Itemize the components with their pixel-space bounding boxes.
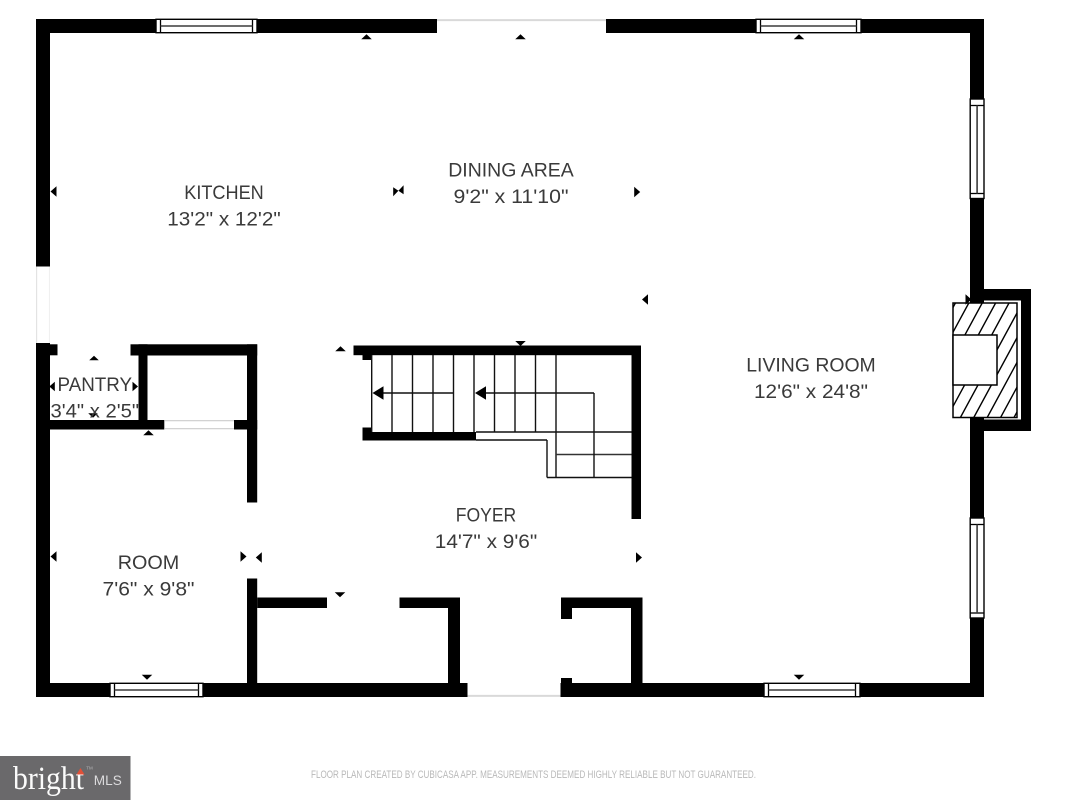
svg-text:FOYER: FOYER	[456, 505, 517, 527]
svg-text:LIVING ROOM: LIVING ROOM	[746, 355, 876, 377]
svg-text:12'6" x 24'8": 12'6" x 24'8"	[754, 381, 868, 403]
svg-text:TM: TM	[86, 765, 93, 770]
svg-text:bright: bright	[13, 761, 84, 797]
svg-text:13'2" x 12'2": 13'2" x 12'2"	[167, 209, 281, 231]
svg-text:MLS: MLS	[94, 773, 122, 788]
svg-text:ROOM: ROOM	[118, 552, 180, 574]
svg-text:3'4" x 2'5": 3'4" x 2'5"	[51, 401, 140, 423]
svg-text:KITCHEN: KITCHEN	[184, 182, 264, 204]
svg-text:DINING AREA: DINING AREA	[448, 160, 574, 182]
svg-text:14'7" x 9'6": 14'7" x 9'6"	[435, 531, 538, 553]
svg-text:9'2" x 11'10": 9'2" x 11'10"	[454, 186, 569, 208]
svg-text:FLOOR PLAN CREATED BY CUBICASA: FLOOR PLAN CREATED BY CUBICASA APP. MEAS…	[311, 769, 756, 781]
svg-text:PANTRY: PANTRY	[58, 374, 133, 396]
svg-text:7'6" x 9'8": 7'6" x 9'8"	[103, 579, 195, 601]
